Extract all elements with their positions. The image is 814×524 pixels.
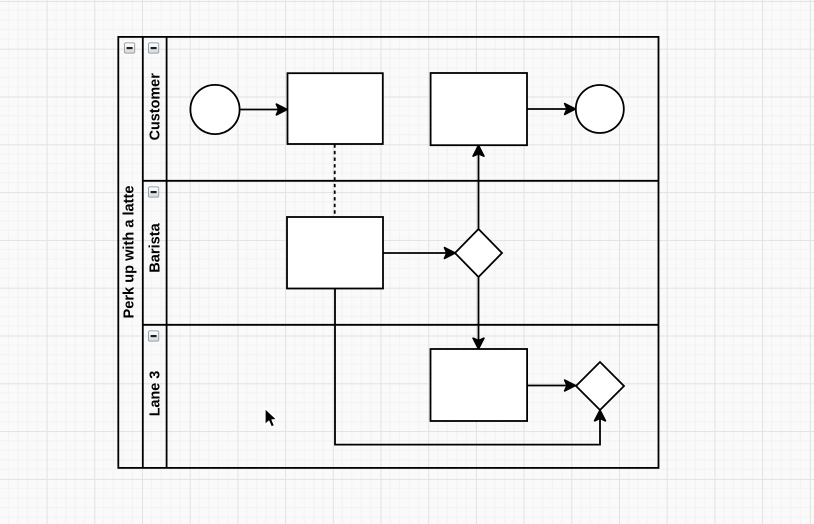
- svg-text:Barista: Barista: [148, 222, 164, 272]
- svg-text:Perk up with a latte: Perk up with a latte: [121, 186, 137, 319]
- svg-text:Lane 3: Lane 3: [148, 371, 164, 417]
- svg-text:Customer: Customer: [148, 73, 164, 141]
